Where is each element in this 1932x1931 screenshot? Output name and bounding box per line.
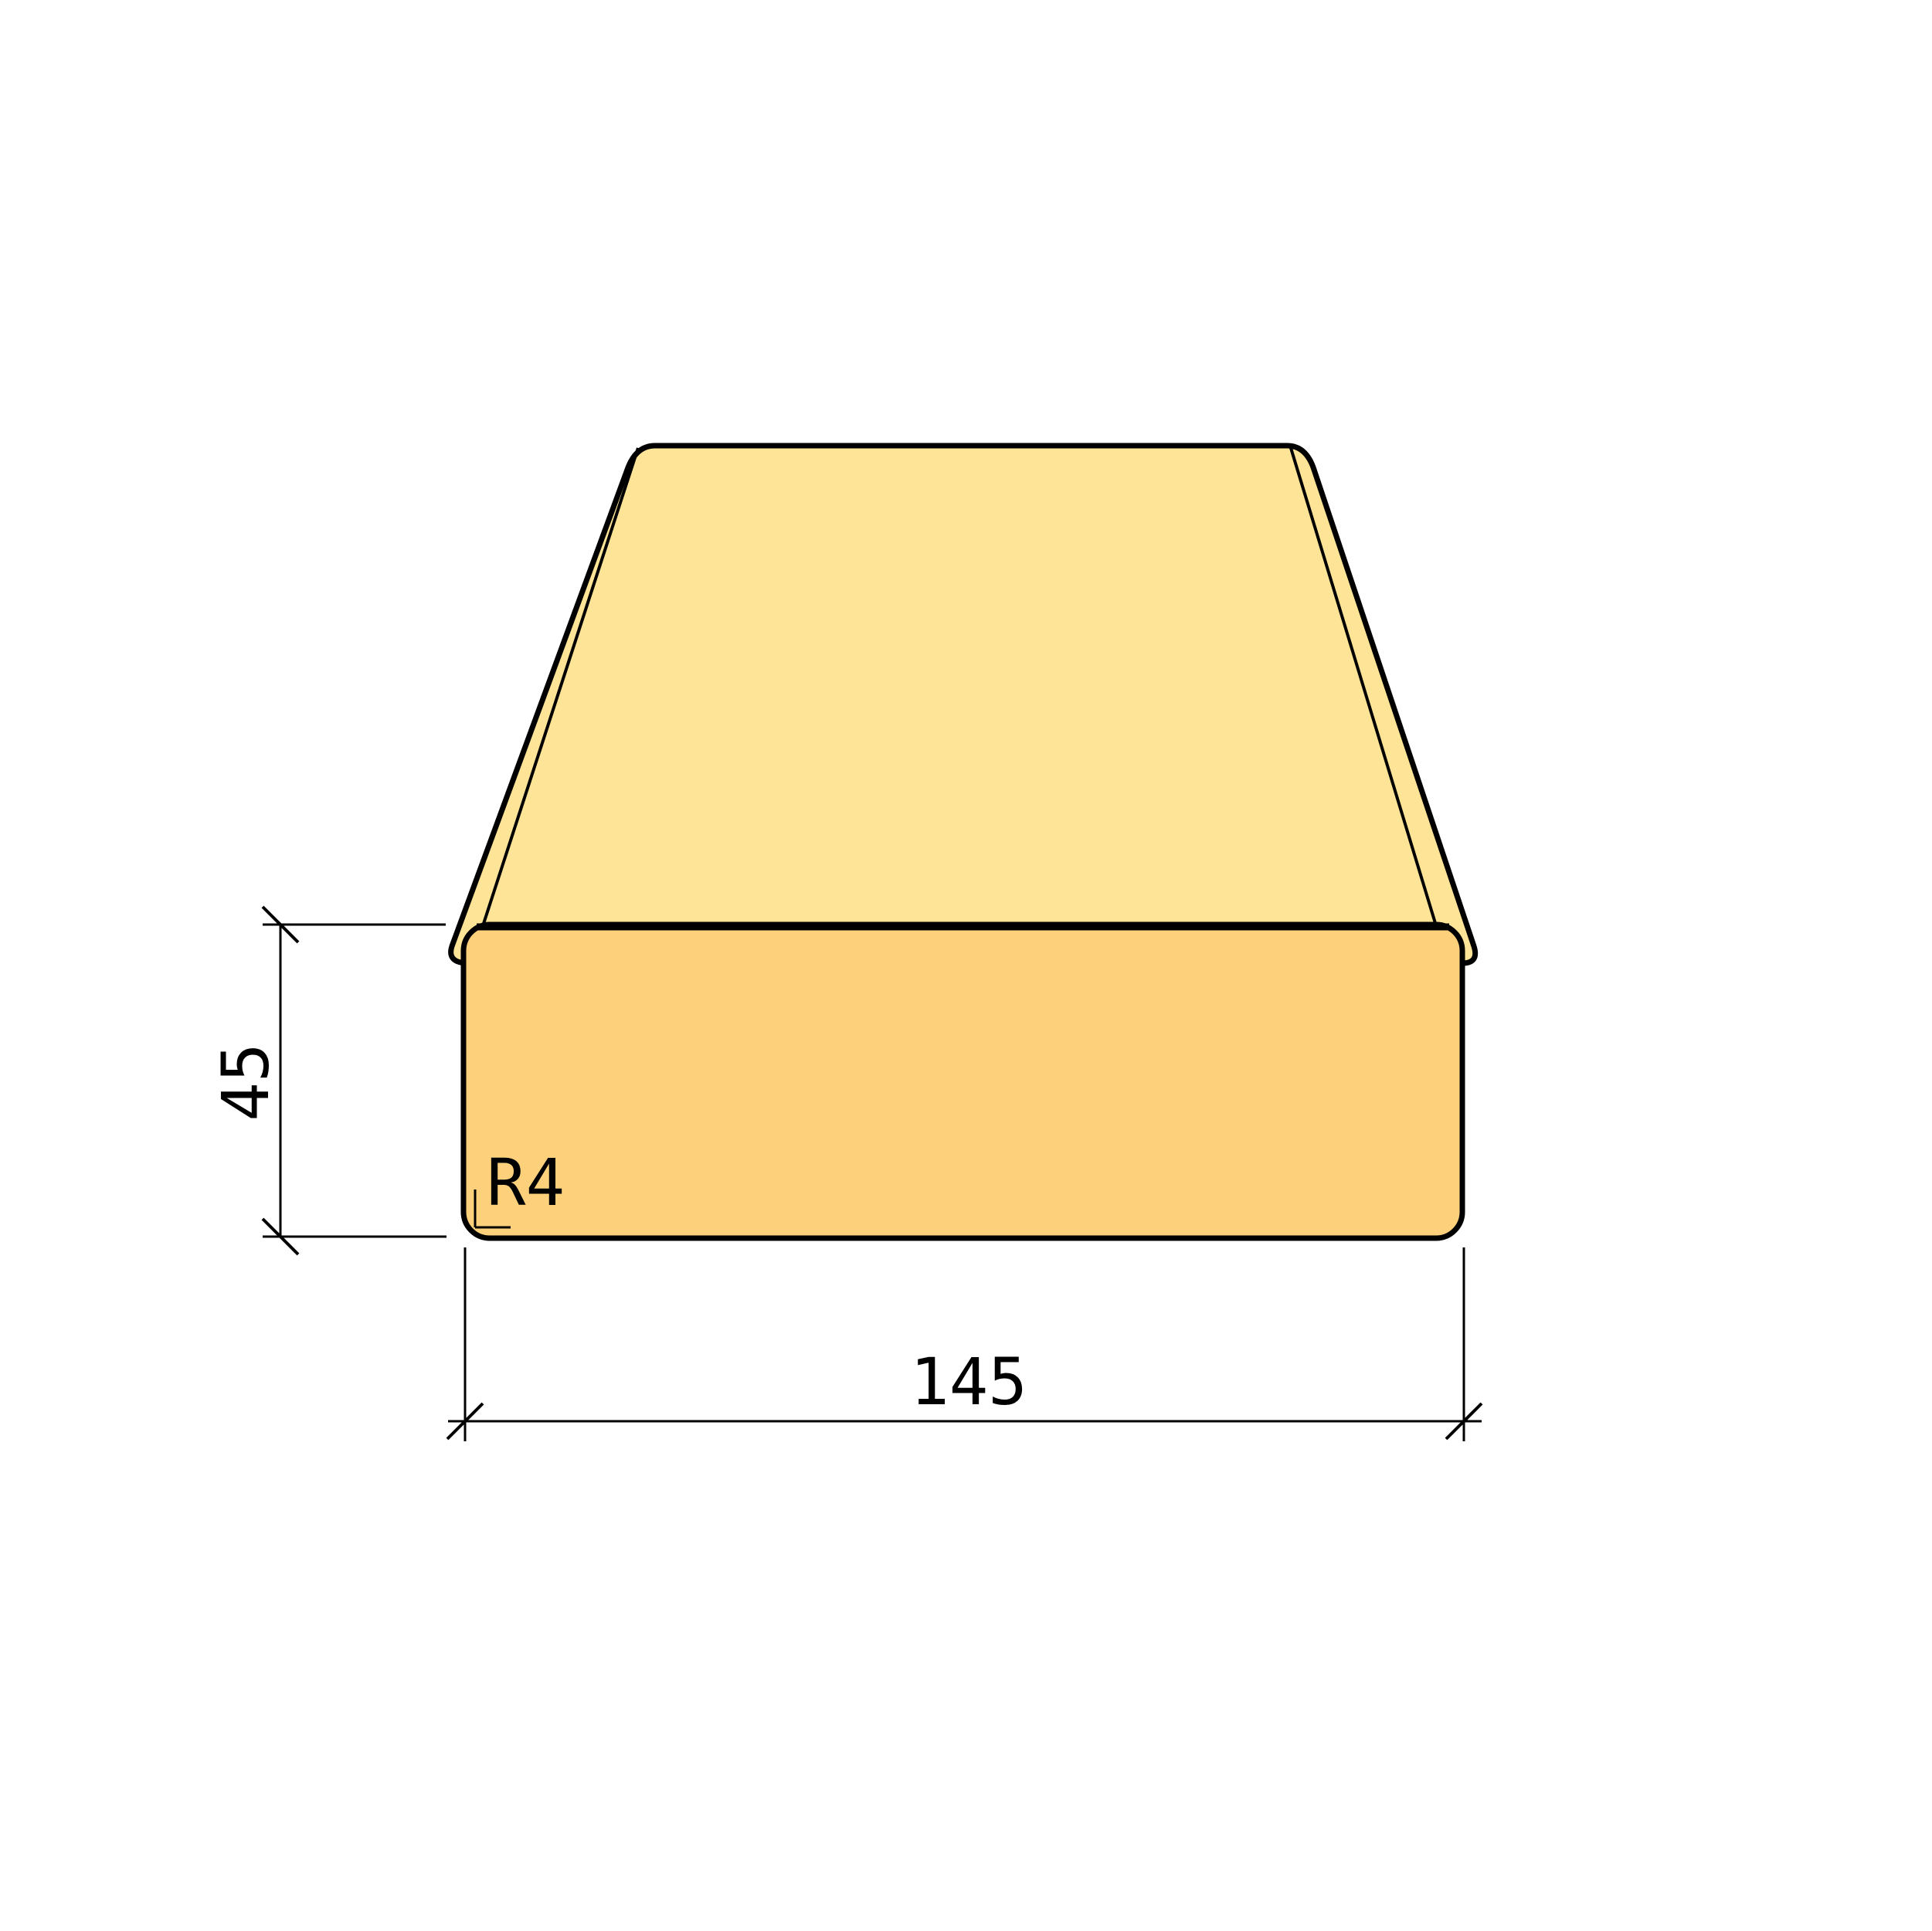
width-dimension-label: 145 [910,1344,1027,1420]
height-dimension: 45 [208,907,446,1254]
board [451,446,1475,1238]
height-dimension-label: 45 [208,1043,284,1121]
board-top-face [451,446,1475,963]
radius-label: R4 [487,1145,565,1220]
board-front-face [463,925,1462,1238]
drawing-canvas: 45 145 R4 [0,0,1932,1931]
width-dimension: 145 [447,1247,1482,1441]
radius-callout: R4 [475,1145,565,1227]
